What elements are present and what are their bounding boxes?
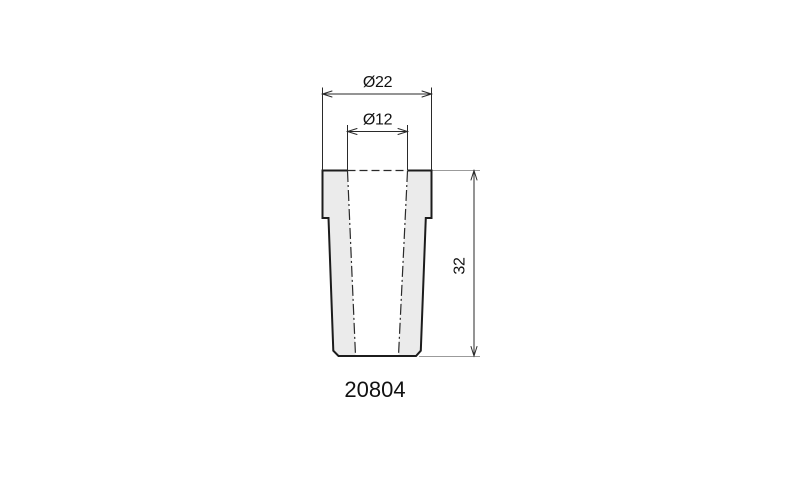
drawing-canvas: Ø22 Ø12 32 20804: [0, 0, 800, 480]
inner-diameter-label: Ø12: [363, 112, 393, 129]
part-number-label: 20804: [344, 377, 405, 402]
dim-inner-diameter: Ø12: [348, 112, 408, 171]
part-view: [323, 171, 432, 357]
outer-diameter-label: Ø22: [363, 74, 393, 91]
height-label: 32: [452, 257, 469, 275]
technical-drawing: Ø22 Ø12 32 20804: [0, 0, 800, 480]
bore-area: [348, 171, 408, 356]
